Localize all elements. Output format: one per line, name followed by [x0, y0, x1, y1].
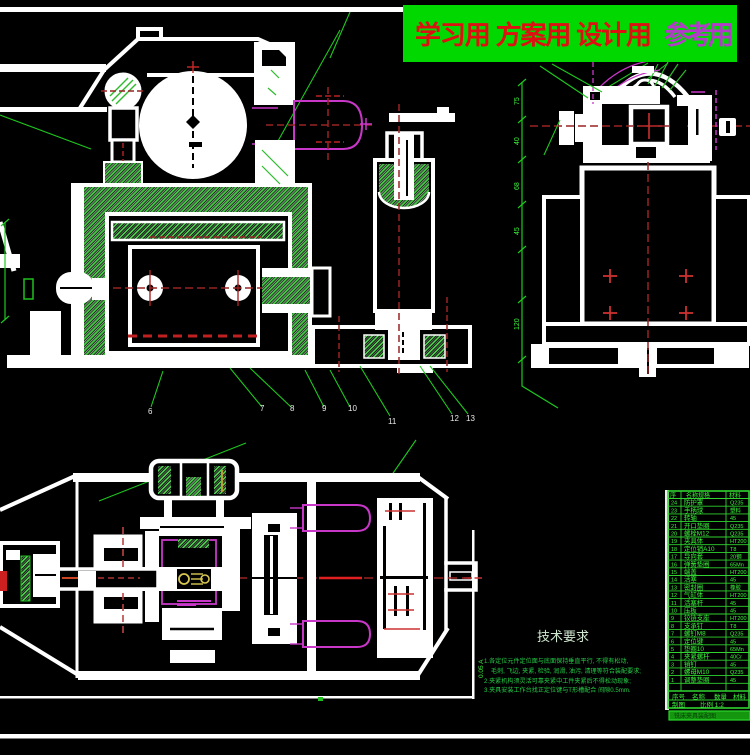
svg-text:45: 45 — [730, 639, 736, 645]
svg-text:HT200: HT200 — [730, 539, 747, 545]
svg-text:21: 21 — [671, 524, 677, 530]
svg-text:活塞: 活塞 — [684, 575, 697, 584]
svg-text:23: 23 — [671, 508, 677, 514]
svg-text:8: 8 — [290, 404, 295, 413]
svg-text:45: 45 — [730, 678, 736, 684]
svg-text:17: 17 — [671, 555, 677, 561]
svg-text:40: 40 — [514, 137, 521, 145]
svg-text:40Cr: 40Cr — [730, 655, 742, 661]
svg-text:65Mn: 65Mn — [730, 647, 744, 653]
svg-text:比例 1:2: 比例 1:2 — [700, 700, 724, 709]
svg-text:45: 45 — [730, 578, 736, 584]
svg-text:6: 6 — [671, 639, 674, 645]
svg-text:T8: T8 — [730, 547, 736, 553]
svg-text:4: 4 — [671, 655, 674, 661]
svg-text:20钢: 20钢 — [730, 553, 742, 561]
svg-text:气缸体: 气缸体 — [684, 590, 704, 599]
svg-text:10: 10 — [348, 404, 357, 413]
svg-text:9: 9 — [322, 404, 327, 413]
svg-text:24: 24 — [671, 501, 677, 507]
svg-text:11: 11 — [388, 417, 397, 426]
svg-text:13: 13 — [671, 585, 677, 591]
svg-text:压板: 压板 — [684, 606, 697, 615]
svg-text:销钉: 销钉 — [684, 659, 697, 668]
svg-text:22: 22 — [671, 516, 677, 522]
svg-text:3: 3 — [671, 662, 674, 668]
svg-text:HT200: HT200 — [730, 593, 747, 599]
svg-text:材料: 材料 — [729, 492, 741, 500]
svg-text:塑料: 塑料 — [730, 506, 742, 514]
svg-text:毛刺, 飞边, 夹紧, 检验, 润滑, 油污, 清理等符合装: 毛刺, 飞边, 夹紧, 检验, 润滑, 油污, 清理等符合装配要求; — [491, 667, 641, 675]
svg-text:转轴: 转轴 — [684, 513, 697, 522]
svg-text:HT200: HT200 — [730, 570, 747, 576]
svg-text:45: 45 — [730, 662, 736, 668]
svg-text:Q235: Q235 — [730, 532, 743, 538]
svg-text:7: 7 — [671, 632, 674, 638]
svg-text:名称规格: 名称规格 — [686, 492, 710, 500]
svg-text:12: 12 — [671, 593, 677, 599]
svg-text:技术要求: 技术要求 — [537, 629, 589, 644]
svg-text:13: 13 — [466, 414, 475, 423]
svg-text:密封圈: 密封圈 — [684, 582, 703, 591]
svg-text:垫圈10: 垫圈10 — [684, 644, 704, 653]
svg-text:HT200: HT200 — [730, 616, 747, 622]
svg-text:铰链支座: 铰链支座 — [684, 613, 710, 622]
svg-text:螺母M10: 螺母M10 — [684, 667, 710, 676]
svg-text:螺钉M8: 螺钉M8 — [684, 629, 706, 638]
svg-text:Q235: Q235 — [730, 524, 743, 530]
svg-text:Q235: Q235 — [730, 501, 743, 507]
svg-text:铣床夹具装配图: 铣床夹具装配图 — [674, 712, 716, 720]
svg-text:夹具体: 夹具体 — [684, 536, 704, 545]
svg-text:手柄球: 手柄球 — [684, 505, 704, 514]
svg-text:导向套: 导向套 — [684, 552, 704, 561]
svg-text:夹紧螺杆: 夹紧螺杆 — [684, 652, 710, 661]
svg-text:定位键: 定位键 — [684, 636, 704, 645]
svg-text:定位销A10: 定位销A10 — [684, 544, 715, 553]
svg-text:68: 68 — [514, 182, 521, 190]
svg-text:45: 45 — [730, 609, 736, 615]
svg-text:7: 7 — [260, 404, 265, 413]
svg-text:1.各定位元件定位面与底面保持垂直平行, 不得有松动,: 1.各定位元件定位面与底面保持垂直平行, 不得有松动, — [484, 657, 629, 665]
svg-text:6: 6 — [148, 407, 153, 416]
svg-text:2: 2 — [671, 670, 674, 676]
svg-text:18: 18 — [671, 547, 677, 553]
svg-text:15: 15 — [671, 570, 677, 576]
svg-text:120: 120 — [514, 318, 521, 330]
svg-text:45: 45 — [730, 516, 736, 522]
svg-text:Q235: Q235 — [730, 632, 743, 638]
svg-text:5: 5 — [671, 647, 674, 653]
svg-text:参考用: 参考用 — [664, 20, 734, 50]
svg-text:调整垫圈: 调整垫圈 — [684, 675, 710, 684]
svg-text:端盖: 端盖 — [684, 567, 697, 576]
svg-text:2.夹紧机构须灵活可靠夹紧中工件夹紧后不得松动现象;: 2.夹紧机构须灵活可靠夹紧中工件夹紧后不得松动现象; — [484, 677, 631, 685]
svg-text:65Mn: 65Mn — [730, 562, 744, 568]
svg-text:9: 9 — [671, 616, 674, 622]
svg-text:45: 45 — [730, 601, 736, 607]
svg-text:11: 11 — [671, 601, 677, 607]
svg-text:10: 10 — [671, 609, 677, 615]
svg-text:19: 19 — [671, 539, 677, 545]
svg-text:3.夹具安装工作台找正定位键与T形槽配合 间隙0.5mm.: 3.夹具安装工作台找正定位键与T形槽配合 间隙0.5mm. — [484, 686, 631, 694]
svg-text:T8: T8 — [730, 624, 736, 630]
svg-text:1: 1 — [671, 678, 674, 684]
svg-text:0.05 A: 0.05 A — [478, 659, 485, 678]
svg-text:8: 8 — [671, 624, 674, 630]
svg-text:45: 45 — [514, 227, 521, 235]
svg-text:支承钉: 支承钉 — [684, 621, 704, 630]
svg-text:Q235: Q235 — [730, 670, 743, 676]
svg-text:14: 14 — [671, 578, 677, 584]
svg-text:活塞杆: 活塞杆 — [684, 598, 704, 607]
svg-text:橡胶: 橡胶 — [730, 583, 742, 591]
svg-text:16: 16 — [671, 562, 677, 568]
svg-text:螺栓M12: 螺栓M12 — [684, 529, 710, 538]
svg-text:序: 序 — [670, 492, 676, 500]
svg-text:弹簧垫圈: 弹簧垫圈 — [684, 559, 710, 568]
svg-text:75: 75 — [514, 97, 521, 105]
svg-text:制图: 制图 — [672, 700, 685, 709]
svg-text:开口垫圈: 开口垫圈 — [684, 521, 710, 530]
svg-text:20: 20 — [671, 532, 677, 538]
svg-text:12: 12 — [450, 414, 459, 423]
svg-text:学习用 方案用 设计用: 学习用 方案用 设计用 — [415, 20, 652, 50]
